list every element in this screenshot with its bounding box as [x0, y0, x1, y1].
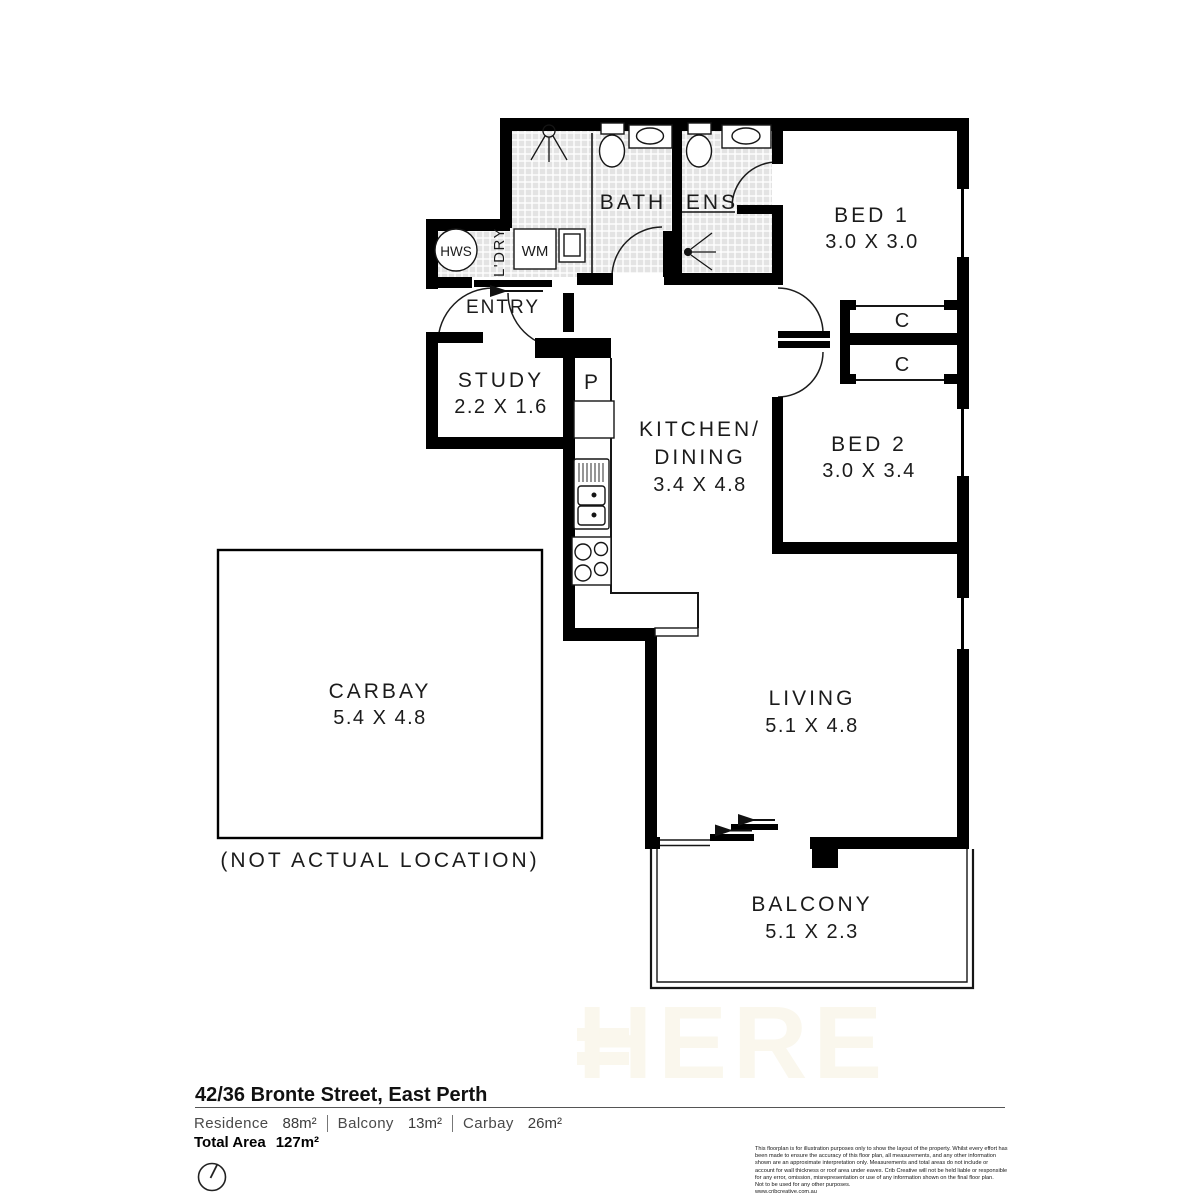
- laundry-trough-basin: [564, 234, 580, 256]
- breakfast-bar: [655, 628, 698, 636]
- sink-basin: [578, 486, 605, 505]
- property-address: 42/36 Bronte Street, East Perth: [195, 1084, 487, 1107]
- bed1-window: [961, 189, 964, 257]
- living-side-window: [961, 598, 964, 649]
- here-watermark: HERE: [577, 985, 888, 1100]
- bed2-door-arc: [778, 352, 823, 397]
- pantry-label: P: [584, 371, 598, 394]
- ens-toilet-cistern: [688, 123, 711, 134]
- area-specs: Residence 88m² Balcony 13m² Carbay 26m²: [194, 1115, 562, 1132]
- footer-divider: [195, 1107, 1005, 1108]
- study-dims: 2.2 X 1.6: [454, 396, 548, 418]
- disclaimer-line: been made to ensure the accuracy of this…: [755, 1153, 1013, 1160]
- living-dims: 5.1 X 4.8: [765, 715, 859, 737]
- hws-label: HWS: [440, 244, 472, 259]
- bath-basin-icon: [637, 128, 664, 144]
- burner: [575, 544, 591, 560]
- burner: [595, 563, 608, 576]
- ens-toilet-icon: [687, 135, 712, 167]
- sliding-door-panel: [710, 834, 754, 841]
- kitchen-label: KITCHEN/: [639, 418, 761, 441]
- carbay-note: (NOT ACTUAL LOCATION): [220, 849, 539, 872]
- kitchen-dims: 3.4 X 4.8: [653, 474, 747, 496]
- closet1-label: C: [895, 310, 909, 332]
- ens-label: ENS: [686, 191, 738, 214]
- balcony-outer-rail: [651, 849, 973, 988]
- drainer-lines: [579, 463, 603, 482]
- disclaimer-line: This floorplan is for illustration purpo…: [755, 1146, 1013, 1153]
- sink-basin: [578, 506, 605, 525]
- spec-value: 88m²: [282, 1115, 316, 1132]
- total-area-label: Total Area: [194, 1134, 266, 1151]
- disclaimer-line: shown are an approximate interpretation …: [755, 1160, 1013, 1167]
- study-label: STUDY: [458, 369, 544, 392]
- bed1-dims: 3.0 X 3.0: [825, 231, 919, 253]
- bath-label: BATH: [600, 191, 666, 214]
- balcony-label: BALCONY: [751, 893, 872, 916]
- spec-label: Balcony: [338, 1115, 394, 1132]
- burner: [595, 543, 608, 556]
- total-area: Total Area127m²: [194, 1134, 319, 1151]
- spec-separator: [327, 1115, 328, 1132]
- spec-value: 26m²: [528, 1115, 562, 1132]
- carbay-dims: 5.4 X 4.8: [333, 707, 427, 729]
- entry-label: ENTRY: [466, 297, 540, 318]
- bed2-dims: 3.0 X 3.4: [822, 460, 916, 482]
- watermark-text: HERE: [578, 985, 888, 1100]
- bed1-label: BED 1: [834, 204, 910, 227]
- disclaimer-line: account for wall thickness or roof area …: [755, 1168, 1013, 1175]
- burner: [575, 565, 591, 581]
- balcony-column: [812, 849, 838, 868]
- floor-plan-drawing: HERE: [0, 0, 1200, 1200]
- disclaimer-line: www.cribcreative.com.au: [755, 1189, 1013, 1196]
- balcony-dims: 5.1 X 2.3: [765, 921, 859, 943]
- disclaimer-line: for any error, omission, misrepresentati…: [755, 1175, 1013, 1182]
- spec-label: Carbay: [463, 1115, 514, 1132]
- laundry-label: L'DRY: [491, 227, 508, 277]
- disclaimer: This floorplan is for illustration purpo…: [755, 1146, 1013, 1196]
- floor-plan-page: HERE: [0, 0, 1200, 1200]
- bed1-door-arc: [778, 288, 823, 333]
- ens-basin-icon: [732, 128, 760, 144]
- fridge-space: [574, 401, 614, 438]
- bed2-window: [961, 409, 964, 476]
- carbay-label: CARBAY: [329, 680, 432, 703]
- disclaimer-line: Not to be used for any other purposes.: [755, 1182, 1013, 1189]
- sink-drain: [592, 493, 596, 497]
- spec-label: Residence: [194, 1115, 268, 1132]
- closet2-label: C: [895, 354, 909, 376]
- dining-label: DINING: [654, 446, 746, 469]
- compass-icon: [199, 1164, 226, 1191]
- bath-toilet-cistern: [601, 123, 624, 134]
- wm-label: WM: [522, 243, 549, 260]
- bath-toilet-icon: [600, 135, 625, 167]
- living-label: LIVING: [769, 687, 856, 710]
- sink-drain: [592, 513, 596, 517]
- spec-value: 13m²: [408, 1115, 442, 1132]
- total-area-value: 127m²: [276, 1134, 319, 1151]
- bed2-label: BED 2: [831, 433, 907, 456]
- sliding-door-panel: [731, 824, 778, 830]
- spec-separator: [452, 1115, 453, 1132]
